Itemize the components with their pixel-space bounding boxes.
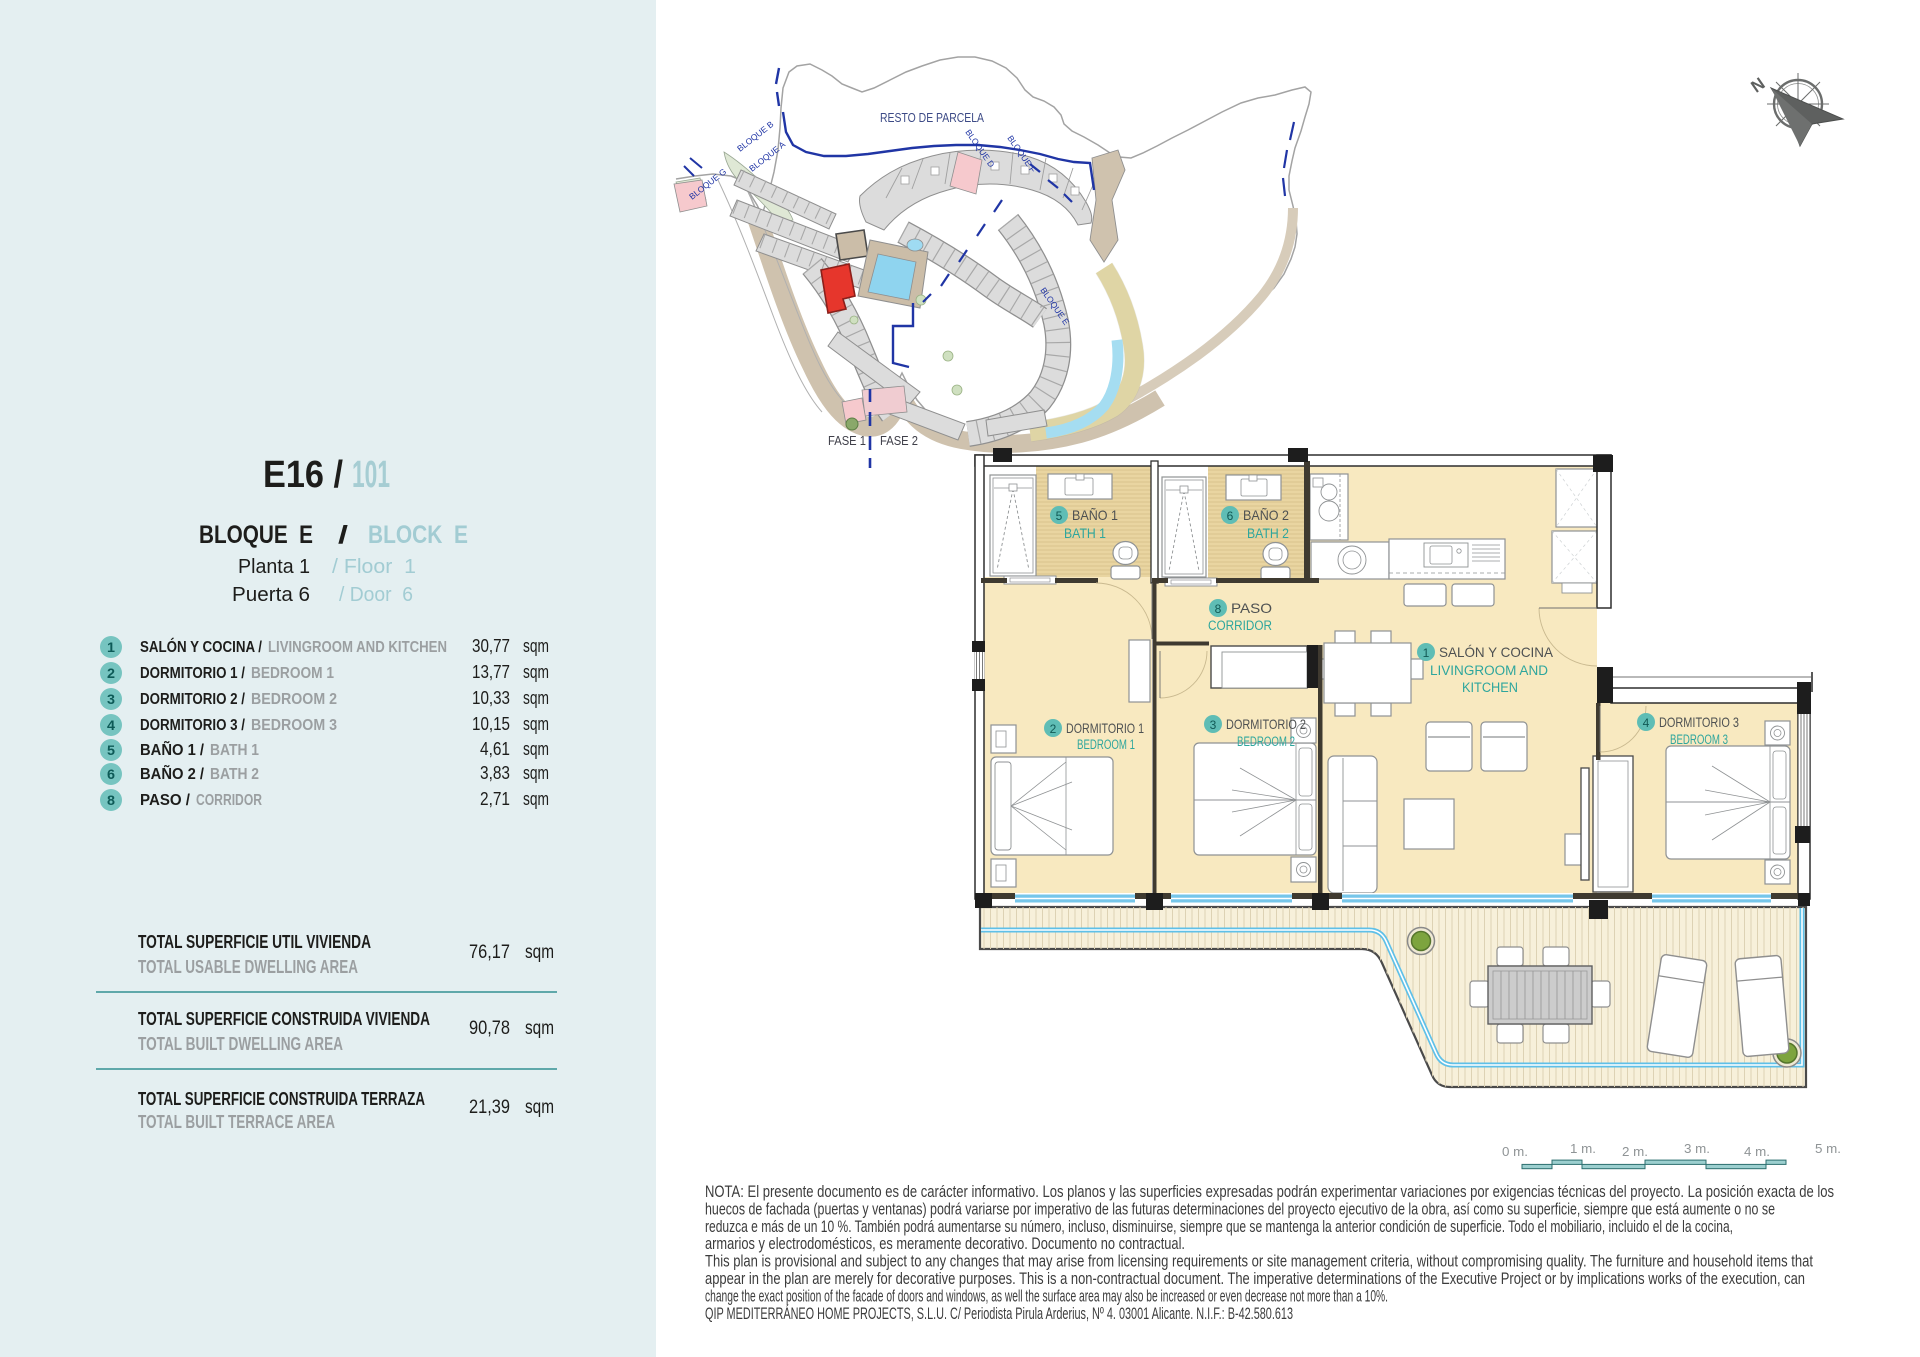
svg-text:sqm: sqm xyxy=(525,1097,554,1118)
svg-text:TOTAL BUILT TERRACE AREA: TOTAL BUILT TERRACE AREA xyxy=(138,1111,335,1132)
svg-text:FASE 2: FASE 2 xyxy=(880,434,918,448)
svg-text:TOTAL SUPERFICIE UTIL VIVIENDA: TOTAL SUPERFICIE UTIL VIVIENDA xyxy=(138,931,371,952)
svg-text:101: 101 xyxy=(352,454,390,496)
svg-text:8: 8 xyxy=(1215,602,1222,616)
svg-text:6: 6 xyxy=(1227,509,1234,523)
svg-text:3: 3 xyxy=(107,691,115,707)
svg-text:BATH 2: BATH 2 xyxy=(1247,526,1289,541)
svg-text:LIVINGROOM AND: LIVINGROOM AND xyxy=(1430,663,1548,678)
svg-text:Puerta 6: Puerta 6 xyxy=(232,584,310,606)
svg-text:BEDROOM 3: BEDROOM 3 xyxy=(251,717,337,734)
svg-text:PASO /: PASO / xyxy=(140,792,191,809)
svg-text:DORMITORIO 3: DORMITORIO 3 xyxy=(1659,714,1739,730)
svg-text:BEDROOM 1: BEDROOM 1 xyxy=(1077,737,1135,752)
svg-text:/: / xyxy=(338,521,348,549)
svg-text:BAÑO 1 /: BAÑO 1 / xyxy=(140,739,205,759)
svg-text:DORMITORIO 1 /: DORMITORIO 1 / xyxy=(140,665,245,682)
svg-text:21,39: 21,39 xyxy=(469,1097,510,1118)
svg-text:BEDROOM 2: BEDROOM 2 xyxy=(1237,734,1295,749)
svg-text:change the exact position of t: change the exact position of the facade … xyxy=(705,1286,1388,1305)
svg-text:4: 4 xyxy=(1643,716,1650,730)
svg-text:SALÓN Y COCINA: SALÓN Y COCINA xyxy=(1439,644,1554,660)
svg-text:BEDROOM 1: BEDROOM 1 xyxy=(251,665,334,682)
svg-text:sqm: sqm xyxy=(523,662,549,682)
svg-text:reduzca e más de un 10 %. Tamb: reduzca e más de un 10 %. También podrá … xyxy=(705,1217,1733,1236)
svg-text:N: N xyxy=(1748,74,1769,97)
svg-text:sqm: sqm xyxy=(523,714,549,734)
svg-text:TOTAL SUPERFICIE CONSTRUIDA TE: TOTAL SUPERFICIE CONSTRUIDA TERRAZA xyxy=(138,1088,425,1109)
svg-text:sqm: sqm xyxy=(523,739,549,759)
svg-text:BATH 1: BATH 1 xyxy=(1064,526,1106,541)
svg-text:sqm: sqm xyxy=(523,789,549,809)
svg-text:BATH 2: BATH 2 xyxy=(210,766,259,783)
svg-text:CORRIDOR: CORRIDOR xyxy=(1208,618,1272,633)
svg-text:1: 1 xyxy=(107,639,115,655)
svg-text:TOTAL USABLE DWELLING AREA: TOTAL USABLE DWELLING AREA xyxy=(138,956,358,977)
svg-text:3 m.: 3 m. xyxy=(1684,1142,1710,1156)
svg-text:BAÑO 2: BAÑO 2 xyxy=(1243,507,1289,523)
svg-text:FASE 1: FASE 1 xyxy=(828,434,866,448)
svg-text:5: 5 xyxy=(1056,509,1063,523)
svg-text:DORMITORIO 2 /: DORMITORIO 2 / xyxy=(140,691,245,708)
svg-text:4: 4 xyxy=(107,717,115,733)
svg-text:sqm: sqm xyxy=(523,688,549,708)
svg-text:13,77: 13,77 xyxy=(472,662,510,682)
svg-text:BATH 1: BATH 1 xyxy=(210,742,259,759)
svg-text:SALÓN Y COCINA /: SALÓN Y COCINA / xyxy=(140,637,262,656)
svg-text:BEDROOM 2: BEDROOM 2 xyxy=(251,691,337,708)
svg-text:DORMITORIO 3 /: DORMITORIO 3 / xyxy=(140,717,245,734)
svg-text:sqm: sqm xyxy=(523,636,549,656)
svg-text:sqm: sqm xyxy=(525,1018,554,1039)
svg-text:sqm: sqm xyxy=(525,942,554,963)
svg-text:BLOCK E: BLOCK E xyxy=(368,521,468,549)
svg-text:4 m.: 4 m. xyxy=(1744,1145,1770,1159)
svg-text:3,83: 3,83 xyxy=(480,763,510,783)
svg-text:/ Floor 1: / Floor 1 xyxy=(332,556,416,578)
svg-text:2: 2 xyxy=(107,665,115,681)
svg-text:1: 1 xyxy=(1423,646,1430,660)
svg-text:QIP MEDITERRÁNEO HOME PROJECTS: QIP MEDITERRÁNEO HOME PROJECTS, S.L.U. C… xyxy=(705,1304,1293,1323)
svg-text:6: 6 xyxy=(107,766,115,782)
svg-text:CORRIDOR: CORRIDOR xyxy=(196,792,262,809)
svg-text:BAÑO 2 /: BAÑO 2 / xyxy=(140,763,205,783)
svg-text:3: 3 xyxy=(1210,718,1217,732)
svg-text:2,71: 2,71 xyxy=(480,789,510,809)
svg-text:0 m.: 0 m. xyxy=(1502,1145,1528,1159)
svg-text:10,15: 10,15 xyxy=(472,714,510,734)
svg-text:90,78: 90,78 xyxy=(469,1018,510,1039)
svg-text:5: 5 xyxy=(107,742,115,758)
svg-text:PASO: PASO xyxy=(1231,600,1272,616)
svg-text:BAÑO 1: BAÑO 1 xyxy=(1072,507,1118,523)
svg-text:10,33: 10,33 xyxy=(472,688,510,708)
svg-text:NOTA: El presente documento es: NOTA: El presente documento es de caráct… xyxy=(705,1182,1834,1201)
svg-text:armarios y electrodomésticos,: armarios y electrodomésticos, es meramen… xyxy=(705,1234,1185,1253)
svg-text:appear in the plan are merely: appear in the plan are merely for decora… xyxy=(705,1269,1805,1288)
svg-text:E16 /: E16 / xyxy=(263,454,343,496)
svg-text:TOTAL BUILT DWELLING AREA: TOTAL BUILT DWELLING AREA xyxy=(138,1033,343,1054)
svg-text:TOTAL SUPERFICIE CONSTRUIDA VI: TOTAL SUPERFICIE CONSTRUIDA VIVIENDA xyxy=(138,1008,430,1029)
svg-text:1 m.: 1 m. xyxy=(1570,1142,1596,1156)
svg-text:76,17: 76,17 xyxy=(469,942,510,963)
svg-text:8: 8 xyxy=(107,792,115,808)
svg-text:RESTO DE PARCELA: RESTO DE PARCELA xyxy=(880,110,984,125)
svg-text:LIVINGROOM AND KITCHEN: LIVINGROOM AND KITCHEN xyxy=(268,639,447,656)
svg-text:DORMITORIO 1: DORMITORIO 1 xyxy=(1066,720,1144,736)
svg-text:DORMITORIO 2: DORMITORIO 2 xyxy=(1226,716,1306,732)
svg-text:5 m.: 5 m. xyxy=(1815,1142,1841,1156)
svg-text:Planta 1: Planta 1 xyxy=(238,556,310,578)
svg-text:/ Door 6: / Door 6 xyxy=(339,584,413,606)
svg-text:huecos de fachada (puertas y v: huecos de fachada (puertas y ventanas) p… xyxy=(705,1199,1775,1218)
svg-text:BEDROOM 3: BEDROOM 3 xyxy=(1670,732,1728,747)
svg-text:BLOQUE E: BLOQUE E xyxy=(199,521,313,549)
svg-text:4,61: 4,61 xyxy=(480,739,510,759)
svg-text:2 m.: 2 m. xyxy=(1622,1145,1648,1159)
svg-text:This plan is provisional and s: This plan is provisional and subject to … xyxy=(705,1252,1813,1271)
svg-text:30,77: 30,77 xyxy=(472,636,510,656)
svg-text:KITCHEN: KITCHEN xyxy=(1462,680,1518,695)
svg-text:2: 2 xyxy=(1050,722,1057,736)
svg-text:sqm: sqm xyxy=(523,763,549,783)
